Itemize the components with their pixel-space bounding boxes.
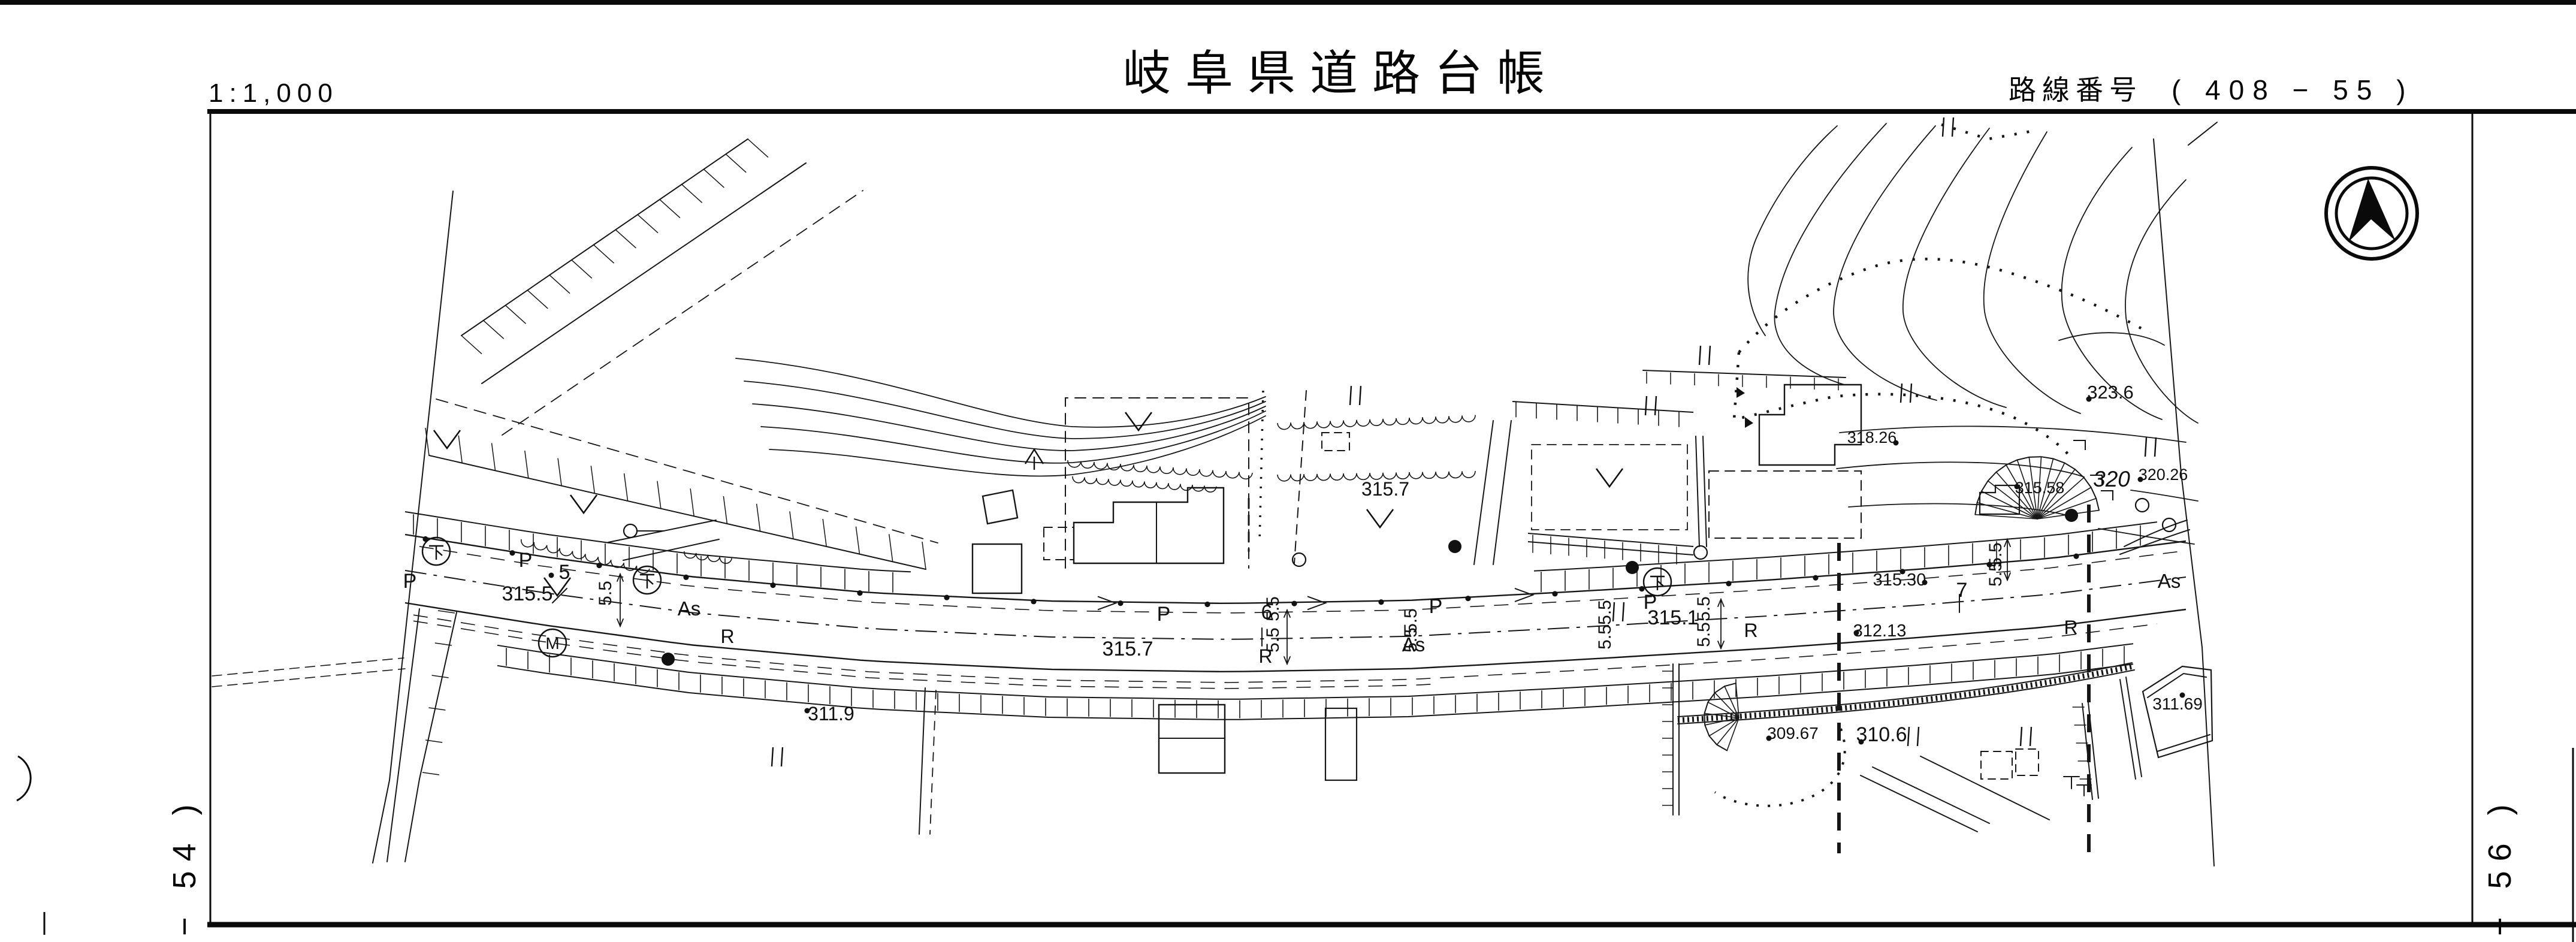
map-label: 323.6 (2087, 382, 2134, 403)
map-label: 315.58 (2015, 479, 2065, 497)
map-label: 5.5 (1263, 627, 1283, 653)
map-label: 320.26 (2139, 466, 2188, 484)
utility-circle (624, 524, 637, 538)
field-mark-v (434, 430, 460, 448)
map-label: 309.67 (1767, 724, 1819, 742)
utility-circle (1694, 546, 1707, 559)
map-label: P (519, 549, 533, 572)
map-label: 5.5 (1595, 624, 1615, 650)
sheet-ref-left: − 54 ) (167, 795, 203, 936)
map-scale: 1:1,000 (209, 78, 339, 108)
manhole-circled-m: M (539, 629, 566, 657)
map-label: 5.5 (1986, 561, 2006, 587)
tree-dot (1448, 540, 1461, 553)
spot-dot (549, 573, 554, 578)
map-label: 7 (1956, 579, 1968, 602)
map-label: 315.30 (1873, 570, 1926, 590)
road-ledger-sheet: 1:1,000 岐阜県道路台帳 路線番号 ( 408 − 55 ) − 54 )… (0, 0, 2576, 942)
map-label: P (403, 570, 417, 593)
map-label: As (678, 597, 701, 620)
map-label: 315.5 (502, 582, 552, 605)
double-tick (1350, 386, 1361, 405)
double-tick (2021, 727, 2031, 746)
road-corridor (405, 139, 2186, 805)
utility-circle (2136, 499, 2149, 512)
svg-text:M: M (545, 634, 559, 653)
tree-dot (2065, 509, 2078, 522)
route-number-label: 路線番号 (2009, 74, 2143, 105)
field-mark-v (1367, 509, 1393, 527)
map-label: R (720, 626, 734, 647)
field-mark-v (570, 495, 597, 513)
map-label: As (2158, 570, 2181, 592)
map-label: 5 (559, 561, 570, 584)
double-tick (1908, 727, 1919, 746)
corner-mark (2101, 491, 2113, 500)
double-tick (1901, 384, 1911, 403)
map-label: 5.5 (596, 581, 615, 606)
map-label: 315.7 (1361, 478, 1409, 500)
double-tick (1645, 396, 1656, 415)
map-label: 5.5 (1401, 627, 1421, 653)
map-label: 5.5 (1694, 622, 1714, 647)
map-canvas: 1:1,000 岐阜県道路台帳 路線番号 ( 408 − 55 ) − 54 )… (0, 0, 2576, 942)
map-label: 5.5 (1263, 596, 1283, 621)
double-tick (2145, 437, 2156, 457)
field-mark-v (1596, 469, 1623, 487)
map-label: 5.5 (1694, 596, 1714, 621)
page-title: 岐阜県道路台帳 (1123, 47, 1559, 100)
map-label: P (1429, 595, 1443, 618)
map-labels: 315.5315.7315.7315.1315.30312.13311.9309… (403, 382, 2203, 746)
manhole-circled-shita (422, 538, 450, 565)
map-label: P (1644, 591, 1657, 614)
double-tick (1943, 117, 1953, 137)
map-label: 312.13 (1853, 621, 1907, 641)
map-label: R (2064, 617, 2077, 638)
map-symbols: M (422, 117, 2185, 766)
north-arrow-icon (2326, 168, 2417, 259)
map-label: 320 (2093, 467, 2130, 491)
bamboo-mark (1025, 449, 1043, 470)
sheet-ref-right: − 56 ) (2482, 795, 2518, 936)
map-label: 318.26 (1847, 428, 1897, 446)
route-number-value: ( 408 − 55 ) (2172, 74, 2414, 105)
map-linework (212, 122, 2217, 866)
map-label: 310.6 (1856, 723, 1907, 746)
map-label: 315.7 (1102, 638, 1153, 660)
map-label: 5.5 (1595, 600, 1615, 625)
corner-mark (2073, 440, 2085, 450)
double-tick (1699, 346, 1710, 365)
clipped-paren-mark (17, 756, 31, 801)
tree-dot (1626, 561, 1639, 574)
page-top-rule (0, 0, 2576, 5)
map-label: 311.9 (808, 703, 854, 724)
field-mark-v (1125, 412, 1152, 430)
map-label: R (1744, 620, 1757, 641)
map-label: P (1157, 603, 1171, 626)
map-label: 311.69 (2152, 695, 2203, 713)
double-tick (772, 747, 783, 766)
tree-dot (662, 653, 675, 666)
